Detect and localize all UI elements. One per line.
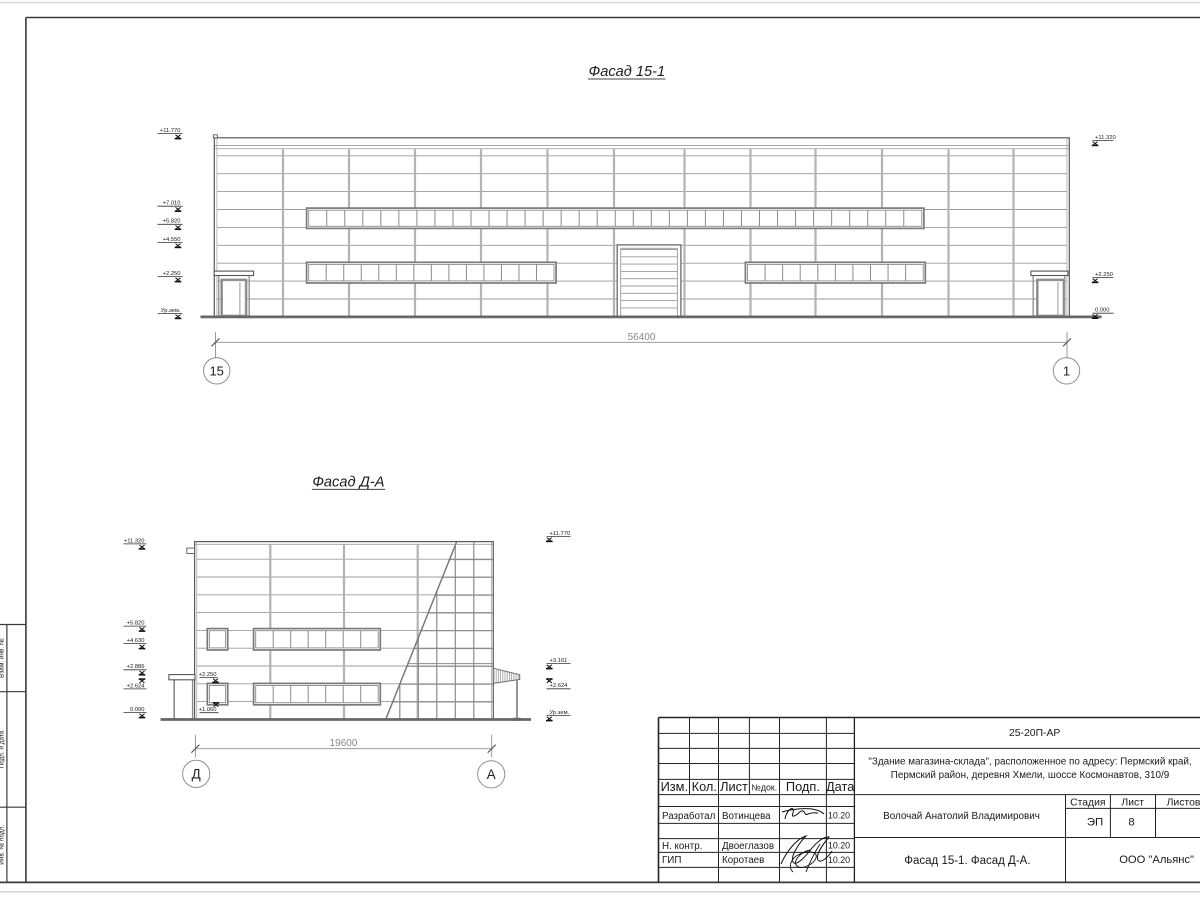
svg-text:№док.: №док. (751, 782, 777, 792)
svg-text:+2.250: +2.250 (199, 672, 217, 678)
svg-text:+2.886: +2.886 (127, 664, 145, 670)
svg-text:Подп.: Подп. (786, 779, 820, 794)
svg-text:Листов: Листов (1167, 798, 1200, 809)
svg-text:Фасад Д-А: Фасад Д-А (312, 475, 384, 491)
svg-text:Стадия: Стадия (1070, 798, 1105, 809)
svg-text:+5.820: +5.820 (163, 219, 181, 225)
svg-text:19600: 19600 (330, 738, 358, 749)
svg-text:Взам. инв. №: Взам. инв. № (0, 638, 6, 678)
svg-text:Лист: Лист (720, 779, 748, 794)
svg-text:Двоеглазов: Двоеглазов (722, 841, 774, 852)
svg-text:Д: Д (192, 767, 201, 782)
svg-text:10.20: 10.20 (828, 855, 850, 865)
svg-text:+4.630: +4.630 (127, 638, 145, 644)
svg-text:0.000: 0.000 (130, 707, 145, 713)
svg-text:+1.060: +1.060 (199, 707, 217, 713)
svg-text:Н. контр.: Н. контр. (662, 841, 702, 852)
svg-text:56400: 56400 (628, 332, 656, 343)
svg-text:+3.161: +3.161 (550, 658, 568, 664)
svg-text:+5.820: +5.820 (127, 621, 145, 627)
svg-text:ЭП: ЭП (1087, 817, 1103, 829)
svg-text:Дата: Дата (826, 779, 855, 794)
svg-text:+11.320: +11.320 (1095, 135, 1116, 141)
svg-text:8: 8 (1128, 817, 1134, 829)
svg-text:Вотинцева: Вотинцева (722, 811, 771, 822)
svg-text:Волочай Анатолий Владимирович: Волочай Анатолий Владимирович (883, 811, 1040, 822)
svg-text:Кол.: Кол. (692, 779, 717, 794)
svg-text:Подп. и дата: Подп. и дата (0, 730, 6, 768)
svg-text:25-20П-АР: 25-20П-АР (1009, 728, 1060, 739)
svg-text:Ур.зем.: Ур.зем. (161, 308, 181, 314)
svg-text:А: А (487, 767, 496, 782)
svg-text:+2.624: +2.624 (127, 683, 146, 689)
svg-text:+2.250: +2.250 (163, 271, 181, 277)
svg-text:+11.320: +11.320 (124, 538, 145, 544)
svg-text:15: 15 (209, 363, 223, 378)
svg-text:Изм.: Изм. (661, 779, 688, 794)
svg-text:+2.624: +2.624 (550, 683, 569, 689)
svg-text:+7.010: +7.010 (163, 201, 181, 207)
svg-text:ГИП: ГИП (662, 855, 681, 866)
svg-text:Ур.зем.: Ур.зем. (550, 710, 570, 716)
svg-text:0.000: 0.000 (1095, 308, 1110, 314)
svg-text:10.20: 10.20 (828, 840, 850, 850)
svg-text:+2.250: +2.250 (1095, 272, 1113, 278)
svg-text:"Здание магазина-склада", расп: "Здание магазина-склада", расположенное … (868, 757, 1191, 768)
svg-text:+11.770: +11.770 (550, 531, 571, 537)
svg-text:10.20: 10.20 (828, 810, 850, 820)
svg-text:1: 1 (1063, 363, 1070, 378)
svg-text:Разработал: Разработал (662, 811, 716, 822)
svg-text:+4.550: +4.550 (163, 237, 181, 243)
svg-text:+11.770: +11.770 (160, 128, 181, 134)
svg-text:Коротаев: Коротаев (722, 855, 764, 866)
svg-text:Лист: Лист (1121, 798, 1144, 809)
svg-text:Фасад 15-1. Фасад Д-А.: Фасад 15-1. Фасад Д-А. (904, 855, 1030, 867)
svg-text:Фасад 15-1: Фасад 15-1 (589, 64, 665, 80)
svg-text:Инв. № подл.: Инв. № подл. (0, 825, 6, 865)
svg-text:Пермский район, деревня Хмели,: Пермский район, деревня Хмели, шоссе Кос… (891, 770, 1170, 781)
svg-text:ООО "Альянс": ООО "Альянс" (1119, 854, 1194, 866)
